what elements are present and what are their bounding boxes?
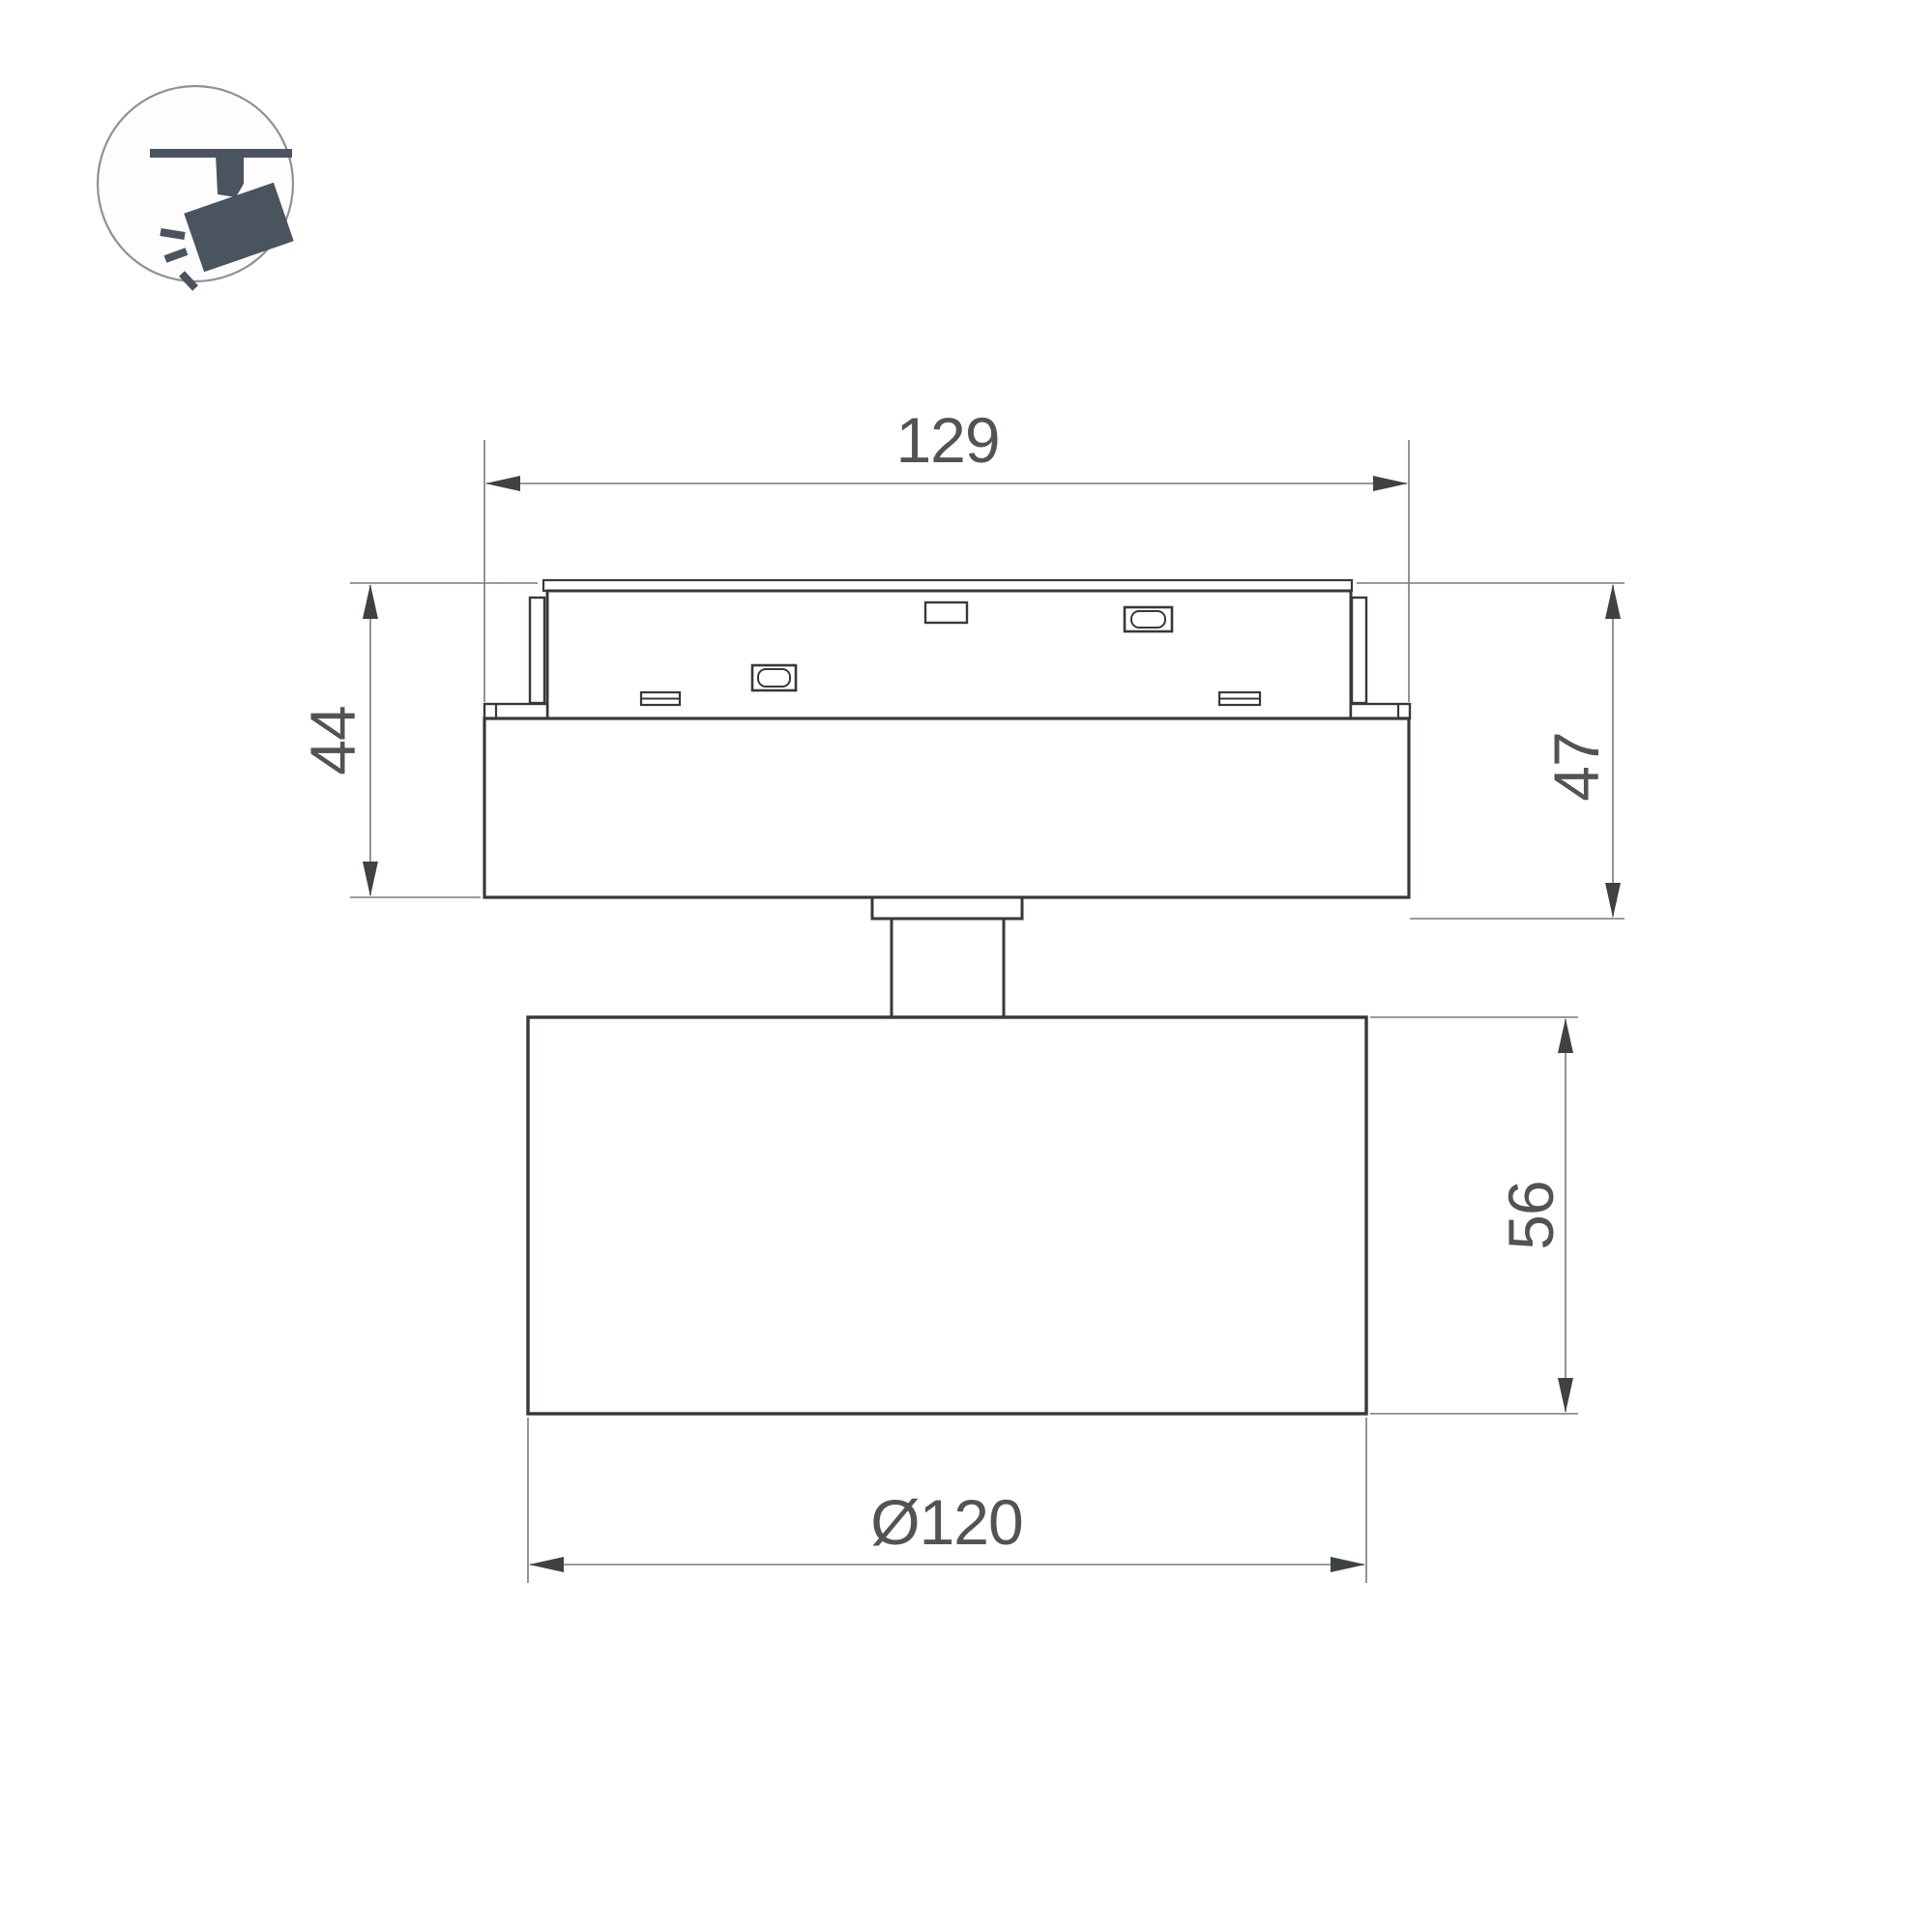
arrowhead-up <box>1558 1018 1573 1053</box>
arrowhead-down <box>1558 1378 1573 1413</box>
adapter-right-wing <box>1351 704 1410 718</box>
adapter-left-tab <box>530 598 544 703</box>
arrowhead-left <box>485 476 520 491</box>
arrowhead-down <box>363 862 378 896</box>
track-rail-strip <box>543 580 1352 591</box>
arrowhead-up <box>363 584 378 619</box>
technical-drawing-page: 129 44 47 56 Ø120 <box>0 0 1932 1932</box>
track-spotlight-icon <box>98 86 294 288</box>
dim-head-height: 56 <box>1370 1017 1578 1414</box>
icon-mount-stem <box>216 155 244 197</box>
mount-collar <box>872 897 1022 919</box>
arrowhead-down <box>1605 883 1621 918</box>
dim-label-adapter-width: 129 <box>895 404 999 476</box>
dim-head-diameter: Ø120 <box>528 1418 1366 1583</box>
adapter-window-detail <box>925 602 967 623</box>
adapter-right-tab <box>1352 598 1366 703</box>
icon-circle <box>98 86 293 281</box>
arrowhead-left <box>529 1557 564 1572</box>
arrowhead-right <box>1373 476 1408 491</box>
dim-label-head-diameter: Ø120 <box>870 1486 1022 1558</box>
adapter-left-wing <box>484 704 547 718</box>
arrowhead-up <box>1605 584 1621 619</box>
mount-stem <box>892 919 1004 1017</box>
dim-label-overall-height: 47 <box>1540 732 1612 801</box>
dim-label-adapter-height: 44 <box>297 706 368 775</box>
drawing-canvas: 129 44 47 56 Ø120 <box>0 0 1932 1932</box>
track-adapter-drawing <box>484 580 1410 897</box>
lamp-head-body <box>528 1017 1366 1414</box>
pivot-mount-drawing <box>872 897 1022 1017</box>
icon-light-ray <box>161 232 185 236</box>
arrowhead-right <box>1331 1557 1365 1572</box>
adapter-base-plate <box>484 718 1409 897</box>
dim-label-head-height: 56 <box>1495 1181 1566 1249</box>
